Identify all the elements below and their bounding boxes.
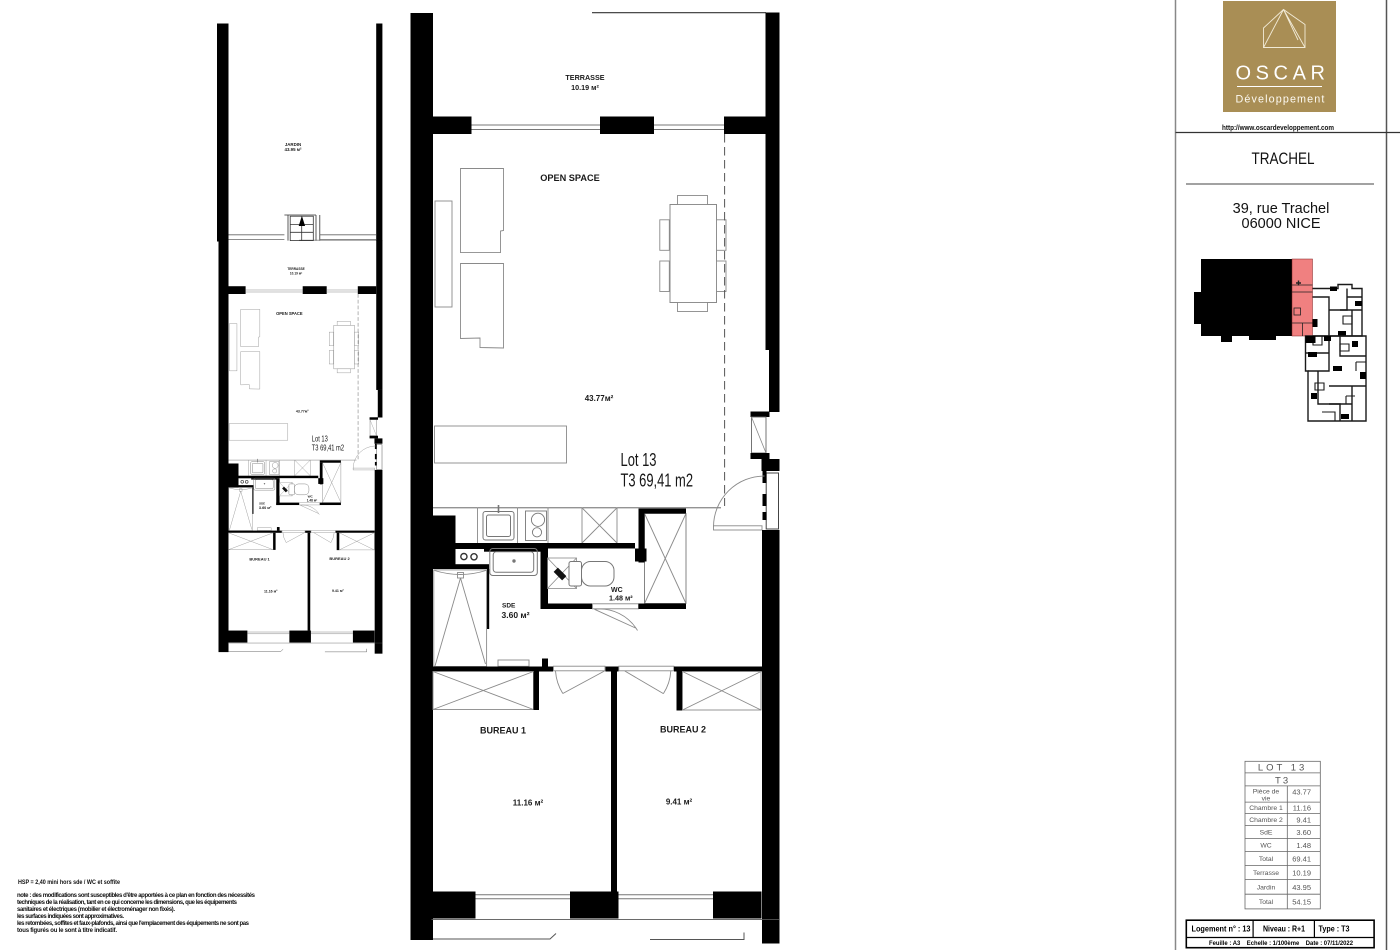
svg-text:Logement n° : 13: Logement n° : 13 [1192,924,1251,934]
svg-text:Type : T3: Type : T3 [1319,924,1350,934]
svg-text:10.19: 10.19 [1292,869,1311,878]
svg-text:43.95: 43.95 [1292,883,1311,892]
svg-text:43.95 м²: 43.95 м² [285,147,302,152]
svg-text:11.16: 11.16 [1293,804,1311,813]
svg-text:BUREAU 1: BUREAU 1 [480,726,526,736]
svg-text:WC: WC [1260,843,1271,850]
svg-text:OPEN SPACE: OPEN SPACE [540,173,600,183]
svg-text:note : des modifications sont: note : des modifications sont susceptibl… [17,893,256,899]
svg-text:TRACHEL: TRACHEL [1252,150,1315,168]
svg-text:les retombées, soffites et fau: les retombées, soffites et faux-plafonds… [17,921,250,927]
svg-text:06000 NICE: 06000 NICE [1242,216,1321,232]
svg-text:SdE: SdE [1260,830,1273,837]
svg-text:SDE: SDE [502,603,516,610]
svg-text:Chambre 1: Chambre 1 [1249,805,1283,812]
svg-text:TERRASSE: TERRASSE [565,73,604,82]
svg-text:Jardin: Jardin [1257,885,1276,892]
svg-text:Développement: Développement [1236,94,1326,106]
svg-text:les surfaces indiquées sont ap: les surfaces indiquées sont approximativ… [17,914,124,920]
svg-text:T3: T3 [1275,776,1290,787]
svg-text:3.60: 3.60 [1296,828,1311,837]
svg-text:3.60 м²: 3.60 м² [502,610,530,620]
svg-text:1.48 м²: 1.48 м² [609,594,633,603]
svg-text:Chambre 2: Chambre 2 [1249,817,1283,824]
svg-text:54.15: 54.15 [1292,898,1311,907]
svg-text:43.77м²: 43.77м² [585,394,614,403]
svg-text:LOT 13: LOT 13 [1258,763,1308,774]
svg-text:vie: vie [1262,796,1271,803]
svg-text:http://www.oscardeveloppement.: http://www.oscardeveloppement.com [1222,125,1334,132]
svg-text:sanitaires et électriques (mob: sanitaires et électriques (mobilier et é… [17,907,175,913]
svg-text:Total: Total [1259,856,1274,863]
svg-text:HSP = 2,40 mini hors sde / WC: HSP = 2,40 mini hors sde / WC et soffite [18,879,120,886]
svg-text:9.41: 9.41 [1296,816,1311,825]
svg-text:tous figurés ou le sont à titr: tous figurés ou le sont à titre indicati… [17,928,117,934]
svg-text:Feuille : A3 Echelle : 1/10: Feuille : A3 Echelle : 1/100ème Date : 0… [1209,940,1353,947]
svg-text:9.41 м²: 9.41 м² [666,798,693,807]
svg-text:69.41: 69.41 [1292,855,1311,864]
svg-text:Lot 13: Lot 13 [621,450,657,470]
svg-text:Terrasse: Terrasse [1253,870,1279,877]
svg-text:Total: Total [1259,899,1274,906]
svg-text:OSCAR: OSCAR [1235,63,1329,85]
svg-text:43.77: 43.77 [1292,788,1311,797]
svg-text:Pièce de: Pièce de [1253,789,1280,796]
svg-text:T3 69,41 m2: T3 69,41 m2 [621,471,694,491]
svg-text:Niveau : R+1: Niveau : R+1 [1263,924,1305,934]
svg-text:39, rue Trachel: 39, rue Trachel [1233,201,1330,217]
svg-text:techniques de la réalisation,: techniques de la réalisation, tant en ce… [17,900,238,906]
svg-text:11.16 м²: 11.16 м² [513,799,544,808]
svg-text:BUREAU 2: BUREAU 2 [660,725,706,735]
svg-text:10.19 м²: 10.19 м² [571,83,599,92]
svg-text:1.48: 1.48 [1296,841,1311,850]
